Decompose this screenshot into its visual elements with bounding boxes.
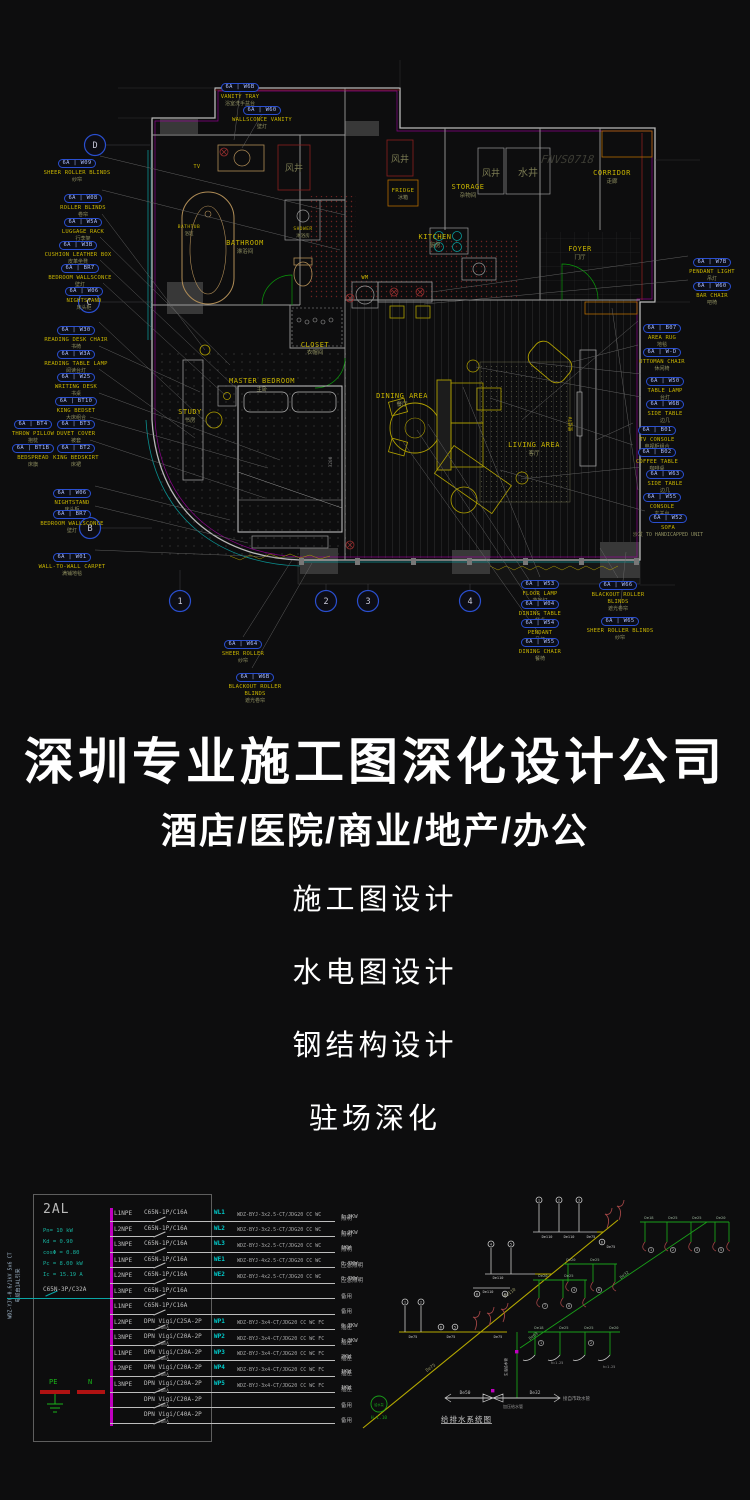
svg-text:De75: De75 <box>494 1335 503 1339</box>
svg-text:De110: De110 <box>483 1290 494 1294</box>
panel-param: Pn= 10 kW <box>43 1226 83 1237</box>
svg-text:SHOWER: SHOWER <box>293 226 312 232</box>
svg-text:4: 4 <box>467 597 472 607</box>
svg-text:CLOSET: CLOSET <box>301 341 330 349</box>
panel-param: Kd = 0.90 <box>43 1237 83 1248</box>
cable-spec: WDZ-BYJ-3x4-CT/JDG20 CC WC FC <box>237 1351 324 1357</box>
white-end-hooks <box>523 1355 610 1360</box>
switch-tick <box>153 1247 165 1253</box>
circuit-line <box>167 1236 335 1237</box>
svg-text:主卧: 主卧 <box>256 385 268 393</box>
circuit-line <box>110 1360 154 1361</box>
circuit-line <box>167 1221 335 1222</box>
svg-text:8: 8 <box>504 1292 506 1296</box>
svg-text:FOYER: FOYER <box>568 245 592 253</box>
svg-text:书房: 书房 <box>184 416 196 424</box>
breaker-label: DPN Vigi/C40A-2P <box>144 1411 202 1418</box>
svg-text:De75: De75 <box>607 1245 616 1249</box>
svg-text:淋浴间: 淋浴间 <box>237 247 254 255</box>
svg-text:BATHROOM: BATHROOM <box>226 239 264 247</box>
circuit-line <box>110 1267 154 1268</box>
red-hooks-low <box>473 1303 508 1330</box>
circuit-line <box>167 1267 335 1268</box>
circuit-line <box>167 1283 335 1284</box>
svg-text:风井: 风井 <box>482 167 500 179</box>
svg-text:DINING AREA: DINING AREA <box>376 392 428 400</box>
breaker-label: C65N-1P/C16A <box>144 1225 187 1232</box>
svg-text:LIVING AREA: LIVING AREA <box>508 441 560 449</box>
phase-label: L3NPE <box>114 1288 132 1295</box>
n-busbar <box>77 1390 105 1394</box>
svg-text:5: 5 <box>454 1325 456 1329</box>
breaker-label: C65N-1P/C16A <box>144 1302 187 1309</box>
circuit-id: WE1 <box>214 1256 225 1263</box>
svg-text:De20: De20 <box>609 1325 619 1330</box>
svg-text:STORAGE: STORAGE <box>451 183 484 191</box>
svg-text:De50: De50 <box>460 1390 471 1396</box>
svg-text:De75: De75 <box>409 1335 418 1339</box>
svg-text:5: 5 <box>720 1248 722 1252</box>
red-hooks-top <box>605 1200 624 1228</box>
svg-text:1: 1 <box>538 1198 540 1202</box>
service-line: 水电图设计 <box>0 949 750 991</box>
breaker-label: C65N-1P/C16A <box>144 1256 187 1263</box>
svg-text:h=1.25: h=1.25 <box>603 1365 615 1369</box>
sectors-subtitle: 酒店/医院/商业/地产/办公 <box>0 802 750 854</box>
svg-text:2: 2 <box>672 1248 674 1252</box>
breaker-label: DPN Vigi/C20A-2P <box>144 1380 202 1387</box>
svg-text:FRIDGE: FRIDGE <box>392 188 415 194</box>
phase-label: L3NPE <box>114 1381 132 1388</box>
svg-text:De25: De25 <box>559 1325 568 1330</box>
svg-text:KITCHEN: KITCHEN <box>418 233 451 241</box>
cad-floor-plan: D C B 1 2 3 4 BATHROOM MASTER BEDROOM ST… <box>0 0 750 700</box>
svg-text:De110: De110 <box>542 1235 553 1239</box>
svg-text:H-1.10: H-1.10 <box>371 1415 388 1421</box>
svg-text:3: 3 <box>365 597 370 607</box>
circuit-id: WP3 <box>214 1349 225 1356</box>
switch-tick <box>153 1309 165 1315</box>
cable-spec: WDZ-BYJ-3x2.5-CT/JDG20 CC WC <box>237 1212 321 1218</box>
breaker-label: C65N-1P/C16A <box>144 1287 187 1294</box>
svg-text:1: 1 <box>650 1248 652 1252</box>
circuit-line <box>110 1423 154 1424</box>
svg-text:1: 1 <box>177 597 182 607</box>
svg-text:MASTER BEDROOM: MASTER BEDROOM <box>229 377 295 385</box>
svg-text:De25: De25 <box>668 1215 677 1220</box>
svg-text:De20: De20 <box>716 1215 726 1220</box>
cable-spec: WDZ-BYJ-3x2.5-CT/JDG20 CC WC <box>237 1243 321 1249</box>
svg-text:风井: 风井 <box>391 153 409 165</box>
svg-text:门厅: 门厅 <box>574 253 586 261</box>
riser-cluster-mid <box>473 1241 535 1297</box>
svg-text:餐厅: 餐厅 <box>396 400 408 408</box>
service-line: 钢结构设计 <box>0 1022 750 1064</box>
plumbing-riser-diagram: De110 De75 给水泵 H-1.10 1236 De110 De110 D… <box>355 1180 750 1450</box>
circuit-line <box>167 1345 335 1346</box>
panel-param: Ic = 15.19 A <box>43 1270 83 1281</box>
circuit-line <box>110 1376 154 1377</box>
svg-text:2: 2 <box>558 1198 560 1202</box>
svg-text:De75: De75 <box>447 1335 456 1339</box>
svg-text:客厅: 客厅 <box>528 449 540 457</box>
svg-text:8: 8 <box>568 1304 570 1308</box>
svg-text:D: D <box>92 141 97 151</box>
company-title: 深圳专业施工图深化设计公司 <box>0 722 750 794</box>
svg-text:De25: De25 <box>584 1325 593 1330</box>
valve-magenta-tick <box>515 1350 518 1353</box>
svg-text:3: 3 <box>578 1198 580 1202</box>
breaker-label: DPN Vigi/C20A-2P <box>144 1364 202 1371</box>
breaker-label: C65N-1P/C16A <box>144 1271 187 1278</box>
svg-text:3: 3 <box>696 1248 698 1252</box>
svg-text:6: 6 <box>598 1288 600 1292</box>
svg-text:6: 6 <box>440 1325 442 1329</box>
phase-label: L2NPE <box>114 1272 132 1279</box>
svg-text:淋浴房: 淋浴房 <box>296 232 310 239</box>
circuit-line <box>110 1252 154 1253</box>
svg-text:1: 1 <box>404 1300 406 1304</box>
circuit-line <box>167 1314 335 1315</box>
svg-text:De20: De20 <box>566 1257 576 1262</box>
riser-title: 给排水系统图 <box>441 1414 492 1424</box>
phase-label: L2NPE <box>114 1319 132 1326</box>
panel-parameters: Pn= 10 kWKd = 0.90cosΦ = 0.80Pc = 8.00 k… <box>43 1226 83 1281</box>
svg-text:C: C <box>86 298 91 308</box>
svg-text:De110: De110 <box>564 1235 575 1239</box>
circuit-id: WL1 <box>214 1209 225 1216</box>
circuit-id: WP1 <box>214 1318 225 1325</box>
svg-text:De25: De25 <box>692 1215 701 1220</box>
cable-spec: WDZ-BYJ-3x4-CT/JDG20 CC WC FC <box>237 1383 324 1389</box>
svg-text:WM: WM <box>361 275 368 281</box>
svg-text:De25: De25 <box>590 1257 599 1262</box>
circuit-id: WP5 <box>214 1380 225 1387</box>
svg-text:B: B <box>87 524 92 534</box>
svg-text:浴缸: 浴缸 <box>185 230 194 237</box>
circuit-line <box>167 1376 335 1377</box>
ground-symbol <box>41 1394 81 1420</box>
switch-tick <box>153 1216 165 1222</box>
cable-spec: WDZ-BYJ-3x2.5-CT/JDG20 CC WC <box>237 1227 321 1233</box>
svg-text:5: 5 <box>510 1242 512 1246</box>
cable-spec: WDZ-BYJ-3x4-CT/JDG20 CC WC FC <box>237 1367 324 1373</box>
cable-spec: WDZ-BYJ-4x2.5-CT/JDG20 CC WC <box>237 1258 321 1264</box>
svg-text:2: 2 <box>420 1300 422 1304</box>
bottom-supply-line: De50 De32 接自市政水管 加压给水管 <box>445 1389 590 1409</box>
svg-text:De25: De25 <box>564 1273 573 1278</box>
svg-text:4: 4 <box>573 1288 575 1292</box>
svg-text:8: 8 <box>476 1292 478 1296</box>
circuit-id: WE2 <box>214 1271 225 1278</box>
foyer-tile-hatch <box>540 232 640 300</box>
switch-tick <box>153 1294 165 1300</box>
cable-spec: WDZ-BYJ-3x4-CT/JDG20 CC WC FC <box>237 1336 324 1342</box>
breaker-label: C65N-1P/C16A <box>144 1209 187 1216</box>
riser-cluster-low <box>402 1299 458 1332</box>
n-label: N <box>88 1378 92 1386</box>
incoming-line <box>7 1298 110 1299</box>
switch-tick <box>153 1263 165 1269</box>
phase-label: L3NPE <box>114 1334 132 1341</box>
circuit-line <box>167 1392 335 1393</box>
panel-param: Pc = 8.00 kW <box>43 1259 83 1270</box>
svg-text:水井: 水井 <box>518 166 538 179</box>
svg-text:7: 7 <box>544 1304 546 1308</box>
svg-text:3200: 3200 <box>328 456 334 467</box>
svg-text:De32: De32 <box>530 1390 541 1396</box>
cable-spec: WDZ-BYJ-4x2.5-CT/JDG20 CC WC <box>237 1274 321 1280</box>
svg-text:6: 6 <box>601 1240 603 1244</box>
switch-tick <box>153 1278 165 1284</box>
circuit-line <box>110 1392 154 1393</box>
circuit-line <box>110 1221 154 1222</box>
phase-label: L2NPE <box>114 1365 132 1372</box>
svg-text:CORRIDOR: CORRIDOR <box>593 169 631 177</box>
svg-text:衣帽间: 衣帽间 <box>307 348 324 356</box>
phase-label: L1NPE <box>114 1210 132 1217</box>
svg-text:BATHTUB: BATHTUB <box>178 224 200 230</box>
circuit-line <box>110 1314 154 1315</box>
svg-text:TV: TV <box>193 164 200 170</box>
phase-label: L2NPE <box>114 1226 132 1233</box>
circuit-id: WL3 <box>214 1240 225 1247</box>
svg-text:风井: 风井 <box>285 162 303 174</box>
circuit-line <box>110 1283 154 1284</box>
svg-text:4: 4 <box>490 1242 492 1246</box>
svg-text:De32: De32 <box>619 1270 630 1280</box>
circuit-id: WP4 <box>214 1364 225 1371</box>
svg-text:生活给水管: 生活给水管 <box>503 1358 508 1376</box>
phase-label: L1NPE <box>114 1303 132 1310</box>
svg-text:2: 2 <box>590 1341 592 1345</box>
circuit-line <box>110 1298 154 1299</box>
breaker-label: DPN Vigi/C20A-2P <box>144 1396 202 1403</box>
pe-label: PE <box>49 1378 57 1386</box>
svg-text:De110: De110 <box>493 1276 504 1280</box>
panel-param: cosΦ = 0.80 <box>43 1248 83 1259</box>
svg-text:De18: De18 <box>534 1325 544 1330</box>
circuit-line <box>110 1329 154 1330</box>
circuit-line <box>110 1345 154 1346</box>
circuit-line <box>167 1298 335 1299</box>
switch-tick <box>153 1231 165 1237</box>
svg-text:给水泵: 给水泵 <box>374 1402 384 1407</box>
circuit-id: WP2 <box>214 1333 225 1340</box>
kitchen-tile-hatch <box>310 196 356 300</box>
circuit-line <box>110 1407 154 1408</box>
svg-text:De20: De20 <box>538 1273 548 1278</box>
svg-text:De18: De18 <box>644 1215 654 1220</box>
service-line: 施工图设计 <box>0 876 750 918</box>
svg-text:STUDY: STUDY <box>178 408 202 416</box>
circuit-line <box>167 1423 335 1424</box>
svg-text:h=1.25: h=1.25 <box>551 1361 563 1365</box>
breaker-label: C65N-1P/C16A <box>144 1240 187 1247</box>
services-list: 施工图设计水电图设计钢结构设计驻场深化 <box>0 876 750 1168</box>
phase-label: L1NPE <box>114 1257 132 1264</box>
circuit-line <box>167 1407 335 1408</box>
svg-text:冰箱: 冰箱 <box>398 194 408 201</box>
svg-text:杂物间: 杂物间 <box>460 191 477 199</box>
breaker-label: DPN Vigi/C20A-2P <box>144 1333 202 1340</box>
watermark-text: FNVS0718 <box>540 153 595 166</box>
incoming-breaker-label: C65N-3P/C32A <box>43 1286 86 1293</box>
pump-symbol: 给水泵 H-1.10 <box>371 1396 388 1421</box>
svg-text:De75: De75 <box>587 1235 596 1239</box>
circuit-line <box>167 1252 335 1253</box>
svg-text:厨房: 厨房 <box>429 241 441 249</box>
circuit-line <box>167 1360 335 1361</box>
svg-text:1: 1 <box>540 1341 542 1345</box>
svg-text:壁挂TV: 壁挂TV <box>567 417 574 432</box>
cable-spec: WDZ-BYJ-3x4-CT/JDG20 CC WC FC <box>237 1320 324 1326</box>
svg-text:2: 2 <box>323 597 328 607</box>
circuit-id: WL2 <box>214 1225 225 1232</box>
service-line: 驻场深化 <box>0 1095 750 1137</box>
breaker-label: DPN Vigi/C20A-2P <box>144 1349 202 1356</box>
circuit-line <box>110 1236 154 1237</box>
breaker-label: DPN Vigi/C25A-2P <box>144 1318 202 1325</box>
svg-text:走廊: 走廊 <box>606 177 618 185</box>
phase-label: L3NPE <box>114 1241 132 1248</box>
feeder-cable-note: WDZ-YJY-0.6/1kV 5x6 CT电缆由1AL引来 <box>8 1216 23 1356</box>
floor-plan-drawing: D C B 1 2 3 4 BATHROOM MASTER BEDROOM ST… <box>0 0 750 700</box>
panel-name: 2AL <box>43 1202 69 1217</box>
svg-text:接自市政水管: 接自市政水管 <box>563 1395 590 1402</box>
svg-text:加压给水管: 加压给水管 <box>503 1403 523 1409</box>
phase-label: L1NPE <box>114 1350 132 1357</box>
circuit-line <box>167 1329 335 1330</box>
